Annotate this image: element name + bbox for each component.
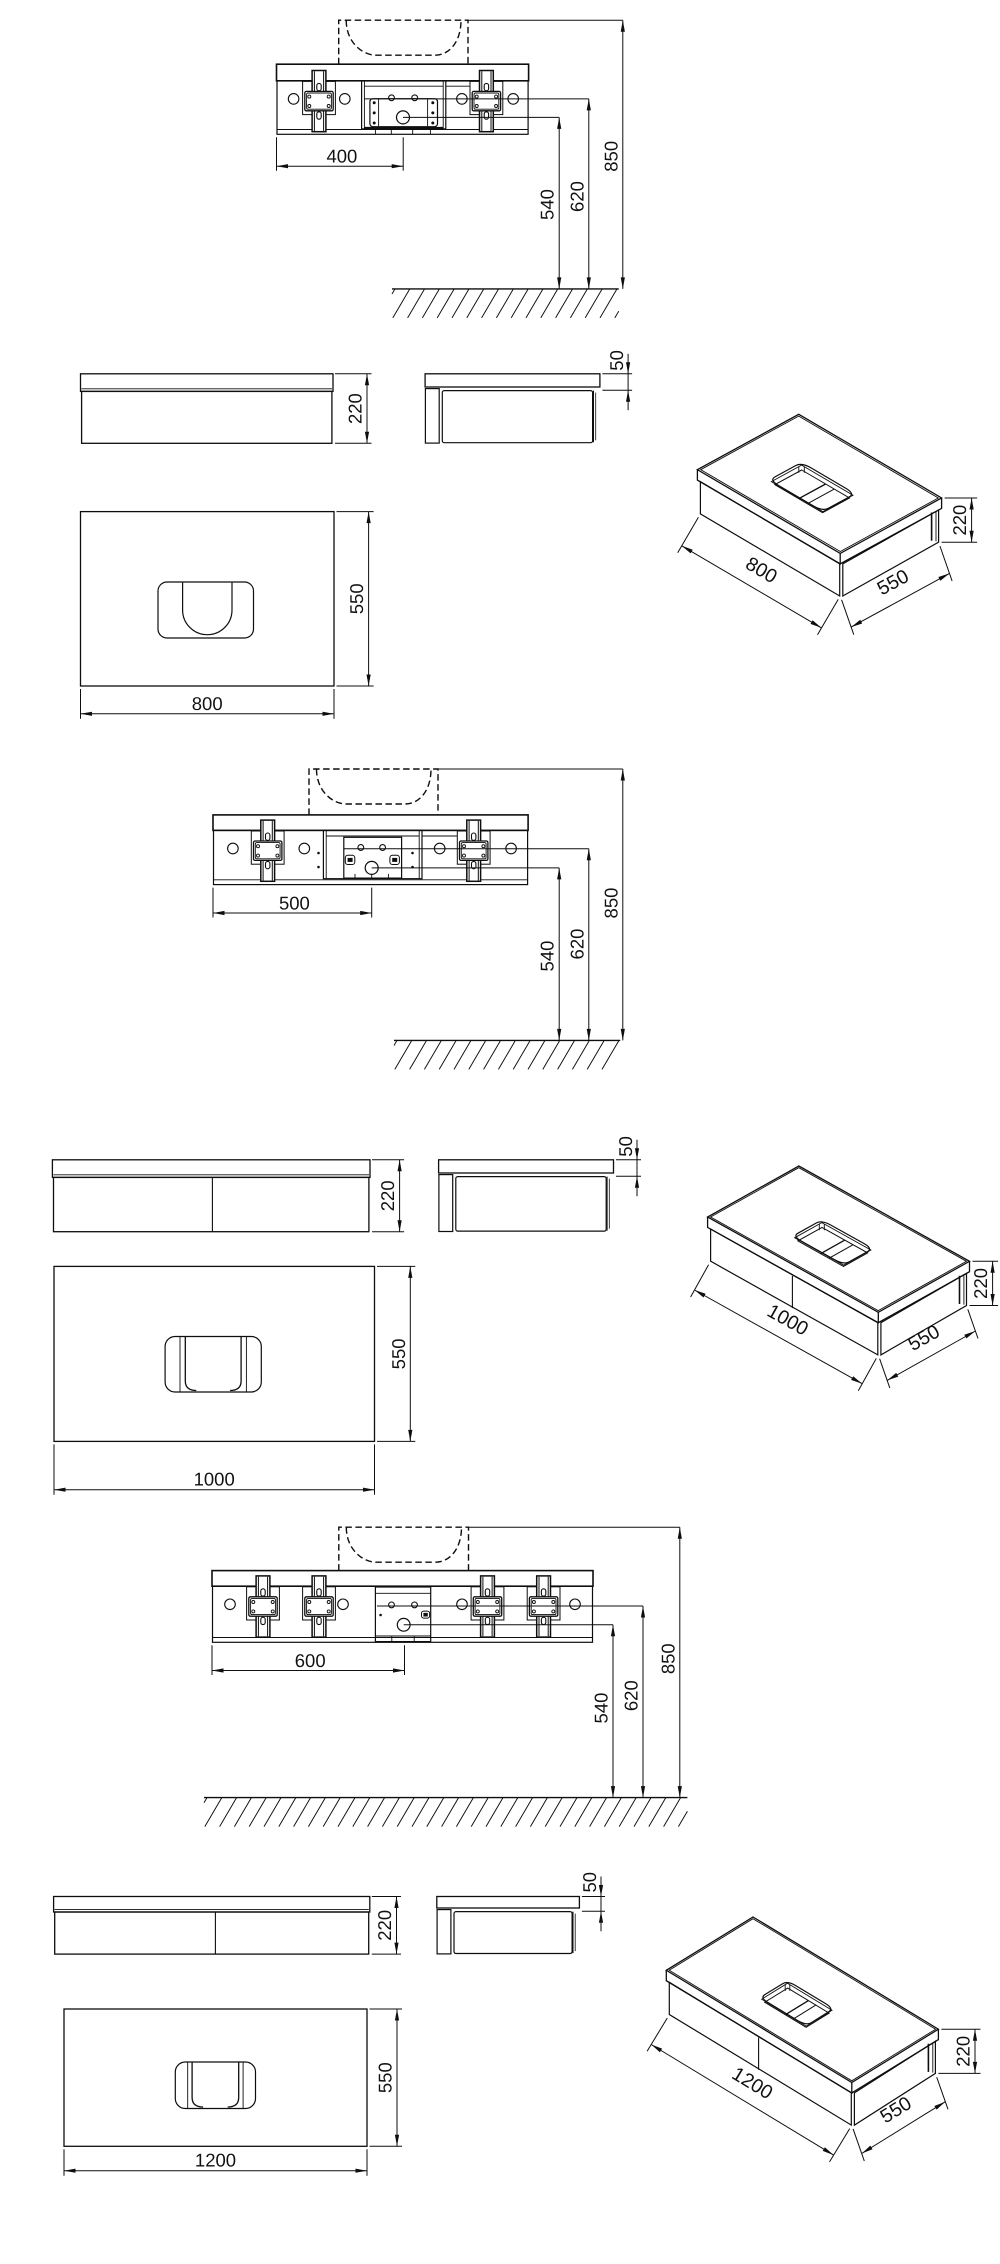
svg-text:220: 220 — [970, 1268, 991, 1299]
svg-text:220: 220 — [377, 1180, 398, 1211]
svg-text:220: 220 — [345, 393, 366, 424]
svg-text:620: 620 — [566, 929, 587, 960]
svg-text:620: 620 — [621, 1680, 642, 1711]
svg-text:550: 550 — [346, 583, 367, 614]
svg-text:540: 540 — [591, 1693, 612, 1724]
svg-text:1200: 1200 — [195, 2150, 236, 2171]
svg-text:600: 600 — [295, 1650, 326, 1671]
svg-text:220: 220 — [953, 2036, 974, 2067]
svg-text:50: 50 — [606, 350, 627, 371]
svg-text:620: 620 — [566, 181, 587, 212]
svg-text:800: 800 — [192, 693, 223, 714]
svg-text:50: 50 — [615, 1136, 636, 1157]
svg-text:850: 850 — [657, 1643, 678, 1674]
svg-text:550: 550 — [375, 2062, 396, 2093]
svg-text:1000: 1000 — [194, 1469, 235, 1490]
svg-text:400: 400 — [326, 146, 357, 167]
svg-text:850: 850 — [600, 141, 621, 172]
svg-text:220: 220 — [374, 1910, 395, 1941]
svg-text:850: 850 — [600, 888, 621, 919]
svg-text:540: 540 — [537, 189, 558, 220]
svg-text:550: 550 — [388, 1338, 409, 1369]
svg-text:50: 50 — [579, 1872, 600, 1893]
svg-text:500: 500 — [279, 893, 310, 914]
svg-text:540: 540 — [537, 941, 558, 972]
svg-text:220: 220 — [949, 505, 970, 536]
